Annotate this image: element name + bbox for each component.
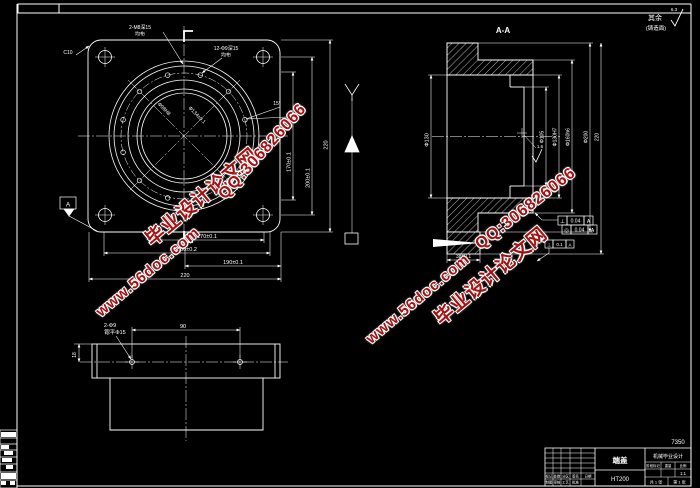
- tol3-sym: ⊥: [547, 243, 551, 249]
- material: HT200: [611, 477, 630, 483]
- dim-bottom-3: 190±0.1: [223, 260, 243, 266]
- section-dim-r5: 220: [595, 133, 601, 142]
- section-roughness: 1.6: [537, 144, 544, 149]
- tb-sheets: 共 1 张: [650, 479, 662, 485]
- bolt-hole-label: 12-Φ9深15: [214, 45, 239, 52]
- chamfer-label: C10: [63, 50, 72, 56]
- datum-letter: A: [66, 202, 71, 209]
- dim-bottom-4: 220: [180, 273, 189, 279]
- section-dim-left: Φ130: [425, 133, 431, 147]
- tb-sign: 签名: [572, 474, 579, 479]
- dim-right-3: 220: [324, 140, 330, 149]
- tol2-val: 0.04: [575, 228, 585, 234]
- binding-strip: [0, 430, 17, 488]
- cb-hole-label2: 锪平Φ15: [104, 328, 126, 336]
- tb-date: 日期: [585, 474, 592, 479]
- zone-box: [18, 4, 59, 13]
- bottom-centerlines: [80, 336, 288, 441]
- tol2-ref: A: [591, 228, 595, 234]
- surface-note-cast: (铸造面): [646, 24, 666, 32]
- dim-bottom-2: 200±0.2: [177, 247, 197, 253]
- titleblock-left-grid: [545, 448, 595, 486]
- cad-drawing-sheet: 其余 6.3 (铸造面) 2-M8深15 均布 12-Φ9深15 均布 C10 …: [0, 0, 700, 488]
- tb-zone: 分区: [562, 474, 569, 479]
- section-dim-r2: Φ130H7: [553, 127, 559, 146]
- tb-process: 工艺: [562, 480, 569, 485]
- ring-dim-label: Φ134±0.1: [187, 105, 207, 125]
- tb-sheet: 第 1 张: [673, 479, 685, 485]
- tol3-ref: A: [568, 243, 571, 248]
- bolt-hole-label2: 均布: [221, 52, 231, 59]
- front-right-dims: [281, 40, 333, 232]
- section-top-material: [447, 43, 533, 75]
- tol1-val: 0.04: [571, 219, 581, 225]
- angle-label: 15°: [273, 101, 281, 107]
- tol1-sym: ⊥: [560, 218, 565, 225]
- tol2-sym: ◎: [564, 228, 569, 234]
- dim-edge-18: 18: [72, 352, 78, 358]
- section-dim-bottom: 38±0.1: [456, 254, 471, 260]
- tap-hole-label: 2-M8深15: [129, 24, 151, 31]
- dim-right-2: 200±0.1: [306, 168, 312, 188]
- tb-scale-val: 1:1: [680, 471, 686, 476]
- tol3-val: 0.1: [556, 242, 563, 247]
- tap-hole-label2: 均布: [135, 31, 145, 38]
- surface-note-rough: 6.3: [671, 7, 678, 12]
- cb-hole-label1: 2-Φ9: [104, 323, 116, 329]
- section-dim-r3: Φ160h6: [566, 128, 572, 146]
- section-bottom-material: [447, 198, 533, 232]
- tb-design: 制图: [546, 480, 553, 485]
- dim-bottom-1: 170±0.1: [197, 234, 217, 240]
- section-dim-r4: Φ200: [584, 131, 590, 144]
- bore-dim-label: Φ98H8: [156, 102, 172, 118]
- surface-note-qiyu: 其余: [648, 13, 662, 22]
- dim-span-90: 90: [180, 324, 186, 330]
- bottom-dims: [74, 327, 240, 362]
- tb-weight: 重量: [665, 463, 672, 468]
- tb-approve: 批准: [572, 480, 579, 485]
- part-name: 端盖: [613, 455, 628, 465]
- section-dim-r1: Φ105: [540, 131, 546, 144]
- section-title: A-A: [496, 26, 510, 35]
- bottom-view: [74, 327, 288, 441]
- tb-count: 处数: [554, 474, 561, 479]
- centerlines: [78, 26, 290, 244]
- tb-check: 审核: [554, 480, 561, 485]
- tb-mark: 标记: [546, 474, 553, 479]
- company: 机械毕业设计: [653, 453, 683, 460]
- dim-right-1: 170±0.1: [287, 152, 293, 172]
- section-indicator: [345, 84, 359, 244]
- drawing-canvas: 其余 6.3 (铸造面) 2-M8深15 均布 12-Φ9深15 均布 C10 …: [0, 0, 700, 488]
- tb-stage: 阶段标记: [646, 463, 660, 468]
- front-leaders: [76, 32, 287, 119]
- tb-scale: 比例: [680, 463, 687, 468]
- part-number: 7350: [671, 440, 685, 446]
